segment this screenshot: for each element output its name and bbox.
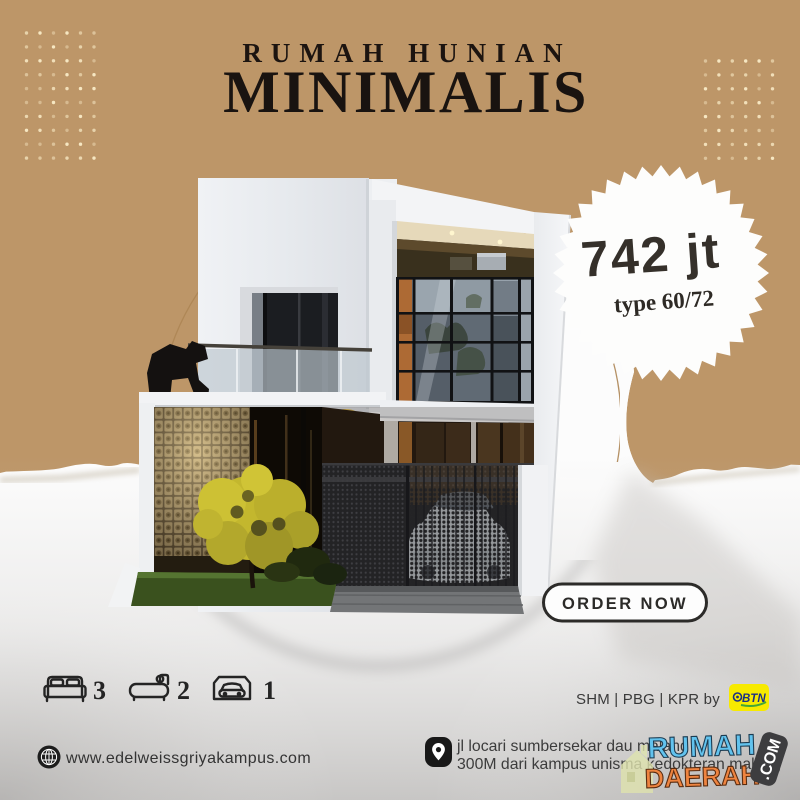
svg-text:2: 2 — [177, 676, 190, 705]
svg-text:MINIMALIS: MINIMALIS — [223, 59, 589, 125]
svg-text:3: 3 — [93, 676, 106, 705]
svg-text:www.edelweissgriyakampus.com: www.edelweissgriyakampus.com — [65, 750, 311, 767]
svg-text:1: 1 — [263, 676, 276, 705]
svg-text:ORDER NOW: ORDER NOW — [562, 595, 688, 613]
svg-text:DAERAH: DAERAH — [644, 760, 760, 794]
svg-text:RUMAH: RUMAH — [647, 729, 756, 765]
svg-text:742 jt: 742 jt — [579, 222, 722, 288]
svg-text:SHM | PBG | KPR by: SHM | PBG | KPR by — [576, 691, 720, 708]
